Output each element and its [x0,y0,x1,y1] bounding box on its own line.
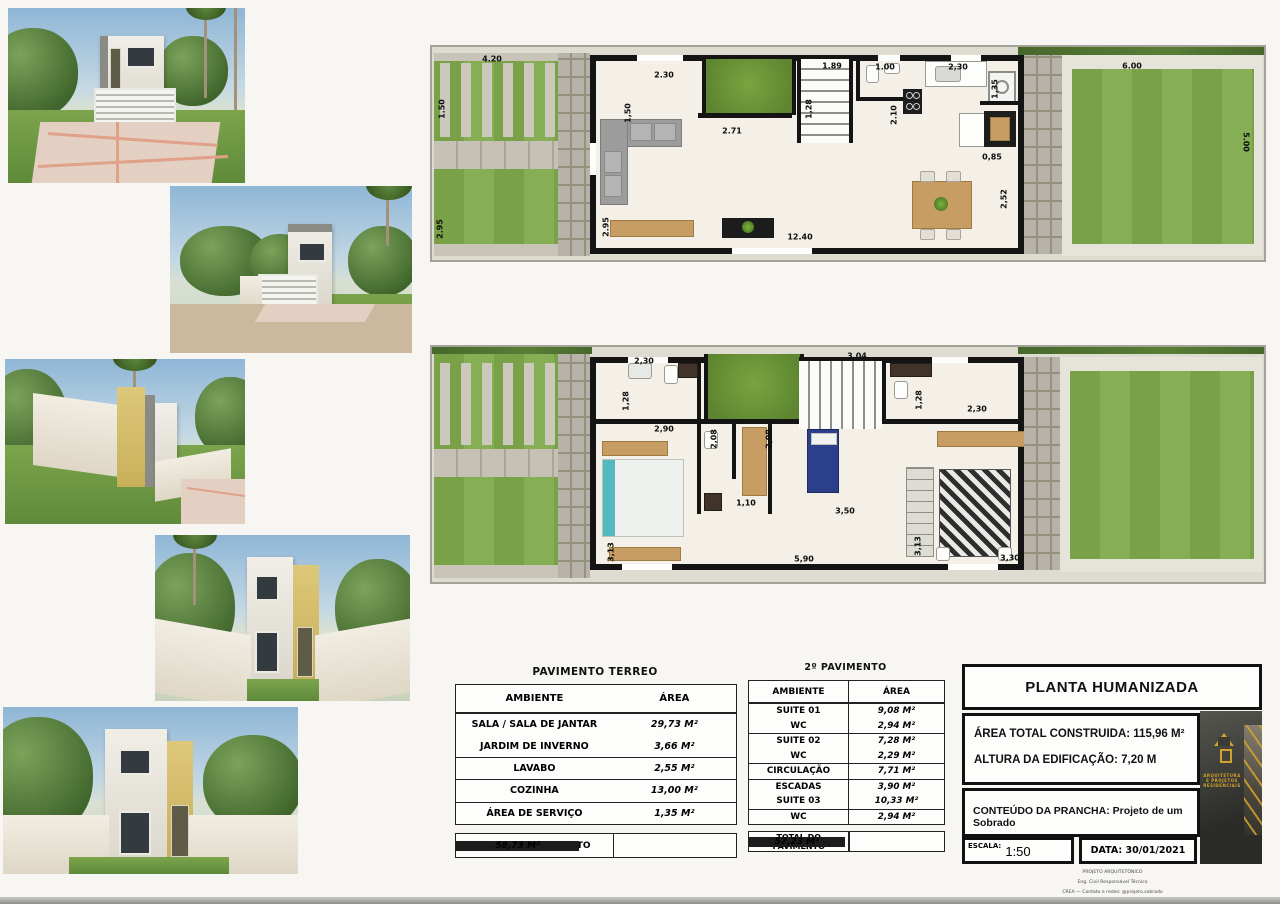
escala-value: 1:50 [965,844,1071,859]
dimension-label: 2,90 [654,425,674,434]
render-front-perspective [170,186,412,353]
bed-suite3-icon [939,469,1011,557]
floor-plan-second: 2,301,282,902,082,081,103,135,903,041,28… [430,345,1266,584]
dimension-label: 2.95 [602,217,611,237]
paved-band [434,449,558,477]
data-box: DATA: 30/01/2021 [1079,837,1197,864]
dimension-label: 2,08 [765,429,774,449]
dresser-icon [602,441,668,456]
cell-area: 3,90 M² [849,782,944,792]
dimension-label: 1,28 [915,390,924,410]
palm-frond-icon [113,359,157,371]
plant-icon [742,221,754,233]
dimension-label: 3,04 [847,352,867,361]
logo-photo [1244,725,1262,835]
cell-area: 10,33 M² [849,796,944,806]
wall-wc2 [882,357,886,422]
paved-band [434,244,558,256]
toilet-icon [664,365,678,384]
sheet-bottom-edge [0,897,1280,904]
front-gate [94,88,176,126]
table2-header: AMBIENTE ÁREA [749,681,944,704]
total-value: 57,23 M² [749,837,845,847]
front-window [298,242,326,262]
patio-floor [181,479,245,524]
cell-area: 2,94 M² [849,812,944,822]
backyard-grass [69,857,229,874]
driveway-joint [116,122,119,183]
col-ambiente: AMBIENTE [456,693,613,704]
dimension-label: 1.89 [822,62,842,71]
table1-body: SALA / SALA DE JANTAR 29,73 M² JARDIM DE… [456,714,736,824]
toilet-icon [894,381,908,399]
cabinet [959,113,987,147]
backyard-grass [247,679,319,701]
palm-trunk-icon [234,8,237,118]
paver-strips [440,63,558,137]
window-gap [732,248,812,254]
table-row: SALA / SALA DE JANTAR 29,73 M² [456,714,736,735]
winter-garden [702,59,796,115]
table-row: WC 2,94 M² [749,809,944,825]
cell-ambiente: WC [749,810,849,825]
hedge [432,347,592,354]
table-row: LAVABO 2,55 M² [456,757,736,779]
render-front-facade [8,8,245,183]
footer-line: Eng. Civil Responsável Técnico [995,878,1230,888]
yellow-wall [117,387,145,487]
table-2-pavimento: AMBIENTE ÁREA SUITE 01 9,08 M² WC 2,94 M… [748,680,945,825]
dimension-label: 2.95 [436,219,445,239]
cell-ambiente: CIRCULAÇÃO [749,764,849,779]
palm-frond-icon [186,8,226,20]
table-row: WC 2,29 M² [749,749,944,764]
rear-door [171,805,189,857]
col-area: ÁREA [613,693,736,704]
tree-icon [348,226,412,296]
logo-window-icon [1220,749,1232,763]
chair-icon [920,229,935,240]
sink-cabinet-icon [704,493,722,511]
cell-ambiente: ESCADAS [749,780,849,795]
vanity-icon [890,363,932,377]
wall-left [590,357,596,570]
dimension-label: 3,13 [914,536,923,556]
sideboard-icon [610,220,694,237]
grey-accent [145,395,155,487]
window-gap [948,564,998,570]
footer-line: PROJETO ARQUITETÔNICO [995,868,1230,878]
table-row: COZINHA 13,00 M² [456,779,736,801]
window-gap [622,564,672,570]
logo-house-icon [1214,733,1234,746]
rear-door [297,627,313,677]
wall-suite3 [882,419,1024,424]
backyard-grass [1072,69,1254,244]
render-rear-view [3,707,298,874]
paved-band [434,565,558,578]
dimension-label: 3,50 [835,507,855,516]
bench-icon [609,547,681,561]
paved-band [434,141,558,169]
cell-area: 13,00 M² [613,785,736,796]
hedge [1018,347,1264,354]
table-row: ÁREA DE SERVIÇO 1,35 M² [456,802,736,824]
winter-garden-void [704,354,804,419]
cell-ambiente: SUITE 01 [749,704,849,719]
chair-icon [946,171,961,182]
cell-area: 29,73 M² [613,719,736,730]
table-row: WC 2,94 M² [749,719,944,734]
table2-total: TOTAL DO PAVIMENTO 57,23 M² [748,831,945,852]
conteudo-label: CONTEÚDO DA PRANCHA: [973,805,1110,817]
chair-icon [920,171,935,182]
window-gap [878,55,900,61]
col-ambiente: AMBIENTE [749,681,849,702]
desk-icon [937,431,1025,447]
lower-door-window [119,811,151,855]
dimension-label: 1.50 [438,99,447,119]
sofa-cushion [604,151,622,173]
cell-area: 2,55 M² [613,763,736,774]
wall-closet [732,424,736,479]
sofa-cushion [630,123,652,141]
dimension-label: 12.40 [787,233,812,242]
office-logo: ARQUITETURAE PROJETOSRESIDENCIAIS [1200,711,1262,864]
bbq-shelf [990,117,1010,141]
dimension-label: 5,90 [794,555,814,564]
chair-icon [946,229,961,240]
escala-box: ESCALA: 1:50 [962,837,1074,864]
backyard-grass [1070,371,1254,559]
dimension-label: 1.00 [875,63,895,72]
table-row: SUITE 01 9,08 M² [749,704,944,719]
sofa-cushion [604,175,622,197]
render-backyard-view [155,535,410,701]
table-pavimento-terreo: AMBIENTE ÁREA SALA / SALA DE JANTAR 29,7… [455,684,737,825]
dimension-label: 1,28 [805,99,814,119]
vanity-icon [678,363,698,378]
table1-total: TOTAL DO PAVIMENTO 58,73 M² [455,833,737,858]
data-value: DATA: 30/01/2021 [1091,845,1186,856]
cell-area: 2,94 M² [849,721,944,731]
boundary-wall-left [155,619,251,701]
bed-suite1-icon [602,459,684,537]
sheet-title: PLANTA HUMANIZADA [1025,679,1198,696]
cell-area: 7,28 M² [849,736,944,746]
col-area: ÁREA [849,687,944,697]
architecture-sheet: 4.201.502.952.301,502.711.891,281.002,30… [0,0,1280,904]
cell-ambiente: SUITE 03 [749,794,849,809]
table-row: SUITE 03 10,33 M² [749,794,944,809]
upper-window [119,749,151,775]
bed-suite2-icon [807,429,839,493]
cell-area: 9,08 M² [849,706,944,716]
table-plant-icon [934,197,948,211]
sofa-cushion [654,123,676,141]
table1-header: AMBIENTE ÁREA [456,685,736,714]
window-gap [637,55,683,61]
roof-edge [288,224,332,232]
conteudo-box: CONTEÚDO DA PRANCHA: Projeto de um Sobra… [962,788,1200,837]
cell-ambiente: WC [749,719,849,734]
wall-wc [856,55,860,101]
hedge [1018,47,1264,55]
cell-area: 7,71 M² [849,766,944,776]
palm-frond-icon [173,535,217,549]
dimension-label: 2,30 [948,63,968,72]
table-row: ESCADAS 3,90 M² [749,779,944,795]
boundary-wall-right [315,619,410,701]
driveway [32,122,221,183]
cell-area: 1,35 M² [613,808,736,819]
dimension-label: 2,52 [1000,189,1009,209]
info-box: ÁREA TOTAL CONSTRUIDA: 115,96 M² ALTURA … [962,713,1200,785]
table1-title: PAVIMENTO TERREO [455,666,735,678]
dimension-label: 2.10 [890,105,899,125]
dimension-label: 3,13 [607,542,616,562]
back-path [1024,55,1062,254]
stairs [799,357,882,429]
conteudo-line: CONTEÚDO DA PRANCHA: Projeto de um Sobra… [973,805,1197,829]
dimension-label: 0,85 [982,153,1002,162]
table2-body: SUITE 01 9,08 M² WC 2,94 M² SUITE 02 7,2… [749,704,944,824]
dimension-label: 2,30 [967,405,987,414]
dimension-label: 2.30 [654,71,674,80]
dimension-label: 6.00 [1122,62,1142,71]
entry-path [558,53,590,256]
floor-plan-ground: 4.201.502.952.301,502.711.891,281.002,30… [430,45,1266,262]
entry-path [558,354,590,578]
render-side-view [5,359,245,524]
cell-ambiente: COZINHA [456,785,613,796]
window-gap [932,357,968,363]
front-door [110,48,121,90]
altura-line: ALTURA DA EDIFICAÇÃO: 7,20 M [974,754,1156,766]
upper-window [255,575,279,601]
palm-trunk-icon [204,8,207,98]
wall-mid [697,424,701,514]
cell-area: 2,29 M² [849,751,944,761]
dimension-label: 1,35 [991,79,1000,99]
dimension-label: 4.20 [482,55,502,64]
entry-door-gap [590,143,596,175]
front-window [126,46,156,68]
cell-ambiente: WC [749,749,849,764]
logo-text: ARQUITETURAE PROJETOSRESIDENCIAIS [1202,773,1242,788]
driveway [255,304,375,322]
footer-smallprint: PROJETO ARQUITETÔNICOEng. Civil Responsá… [995,868,1230,898]
table-row: SUITE 02 7,28 M² [749,733,944,749]
palm-frond-icon [366,186,412,200]
lower-door-window [255,631,279,673]
tree-icon [8,28,78,118]
sheet-title-box: PLANTA HUMANIZADA [962,664,1262,710]
dimension-label: 1,10 [736,499,756,508]
title-block: PLANTA HUMANIZADA ÁREA TOTAL CONSTRUIDA:… [962,664,1262,864]
dimension-label: 2,08 [710,429,719,449]
dimension-label: 1,28 [622,391,631,411]
cell-ambiente: ÁREA DE SERVIÇO [456,808,613,819]
paver-strips [440,363,558,445]
cell-ambiente: JARDIM DE INVERNO [456,741,613,752]
side-wall [33,393,119,477]
nightstand-icon [936,547,950,561]
dimension-label: 2.71 [722,127,742,136]
stove-icon [903,89,922,114]
back-path [1024,357,1060,570]
wall-wc [856,97,906,101]
cell-ambiente: SALA / SALA DE JANTAR [456,719,613,730]
wardrobe-icon [742,427,767,496]
cell-ambiente: SUITE 02 [749,734,849,749]
total-value: 58,73 M² [456,841,579,851]
cell-area: 3,66 M² [613,741,736,752]
table2-title: 2º PAVIMENTO [748,662,943,673]
dimension-label: 1,50 [624,103,633,123]
dimension-label: 2,30 [634,357,654,366]
table-row: JARDIM DE INVERNO 3,66 M² [456,735,736,756]
wall-service [980,101,1024,105]
wall-garden [698,113,792,118]
dimension-label: 5.00 [1242,132,1251,152]
table-row: CIRCULAÇÃO 7,71 M² [749,763,944,779]
dimension-label: 3,30 [1000,554,1020,563]
cell-ambiente: LAVABO [456,763,613,774]
area-total-line: ÁREA TOTAL CONSTRUIDA: 115,96 M² [974,728,1184,740]
